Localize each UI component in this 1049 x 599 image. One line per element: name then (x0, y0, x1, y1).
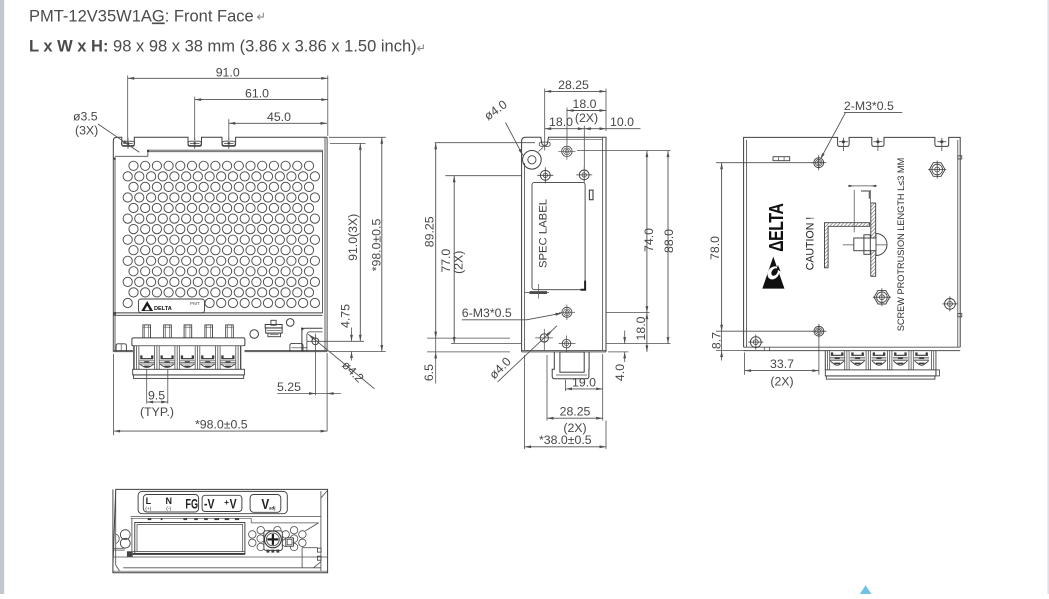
svg-text:4.0: 4.0 (613, 364, 627, 381)
svg-text:*98.0±0.5: *98.0±0.5 (195, 418, 248, 432)
svg-text:9.5: 9.5 (148, 388, 165, 402)
svg-text:PMT: PMT (190, 301, 200, 307)
svg-text:74.0: 74.0 (642, 228, 656, 252)
svg-text:*98.0±0.5: *98.0±0.5 (369, 219, 383, 272)
svg-text:18.0: 18.0 (634, 316, 648, 340)
svg-text:FG: FG (185, 498, 198, 512)
svg-text:(-): (-) (166, 506, 171, 512)
svg-text:91.0: 91.0 (216, 65, 240, 79)
svg-text:88.0: 88.0 (662, 229, 676, 253)
svg-text:CAUTION !: CAUTION ! (805, 217, 817, 271)
svg-text:18.0: 18.0 (573, 97, 597, 111)
svg-text:(3X): (3X) (75, 124, 98, 138)
svg-text:19.0: 19.0 (572, 375, 596, 389)
svg-text:(2X): (2X) (575, 111, 598, 125)
svg-text:5.25: 5.25 (277, 380, 301, 394)
svg-text:33.7: 33.7 (770, 357, 794, 371)
svg-text:ø3.5: ø3.5 (73, 110, 98, 124)
svg-text:45.0: 45.0 (267, 110, 291, 124)
svg-text:18.0: 18.0 (549, 115, 573, 129)
svg-text:28.25: 28.25 (560, 405, 591, 419)
svg-text:-V: -V (204, 496, 215, 512)
svg-text:(+): (+) (145, 506, 151, 512)
svg-text:(2X): (2X) (770, 375, 793, 389)
svg-text:adj: adj (269, 506, 276, 511)
svg-text:*38.0±0.5: *38.0±0.5 (539, 433, 592, 447)
svg-text:PMT-12V35W1AG: Front Face: PMT-12V35W1AG: Front Face (29, 8, 254, 26)
svg-text:10.0: 10.0 (610, 115, 634, 129)
svg-text:L: L (146, 496, 152, 506)
svg-text:61.0: 61.0 (245, 86, 269, 100)
svg-text:6.5: 6.5 (422, 364, 436, 381)
svg-text:8.7: 8.7 (710, 332, 724, 349)
svg-text:78.0: 78.0 (708, 236, 722, 260)
svg-text:SPEC LABEL: SPEC LABEL (537, 199, 549, 268)
svg-text:+: + (224, 497, 229, 507)
svg-text:V: V (230, 496, 238, 512)
svg-text:91.0(3X): 91.0(3X) (346, 214, 360, 261)
svg-text:89.25: 89.25 (422, 216, 436, 247)
svg-text:SCREW PROTRUSION LENGTH L≤3 M: SCREW PROTRUSION LENGTH L≤3 MM (896, 158, 906, 332)
svg-text:DELTA: DELTA (154, 306, 172, 312)
svg-text:L x W x H: 98 x 98 x 38 mm (3.: L x W x H: 98 x 98 x 38 mm (3.86 x 3.86 … (29, 37, 417, 55)
svg-text:28.25: 28.25 (558, 78, 589, 92)
svg-text:ΔELTA: ΔELTA (764, 203, 788, 251)
svg-text:(2X): (2X) (452, 251, 466, 274)
svg-text:4.75: 4.75 (339, 304, 353, 328)
svg-text:N: N (165, 496, 172, 506)
svg-text:(TYP.): (TYP.) (140, 405, 174, 419)
svg-text:2-M3*0.5: 2-M3*0.5 (844, 99, 894, 113)
svg-text:6-M3*0.5: 6-M3*0.5 (462, 306, 512, 320)
